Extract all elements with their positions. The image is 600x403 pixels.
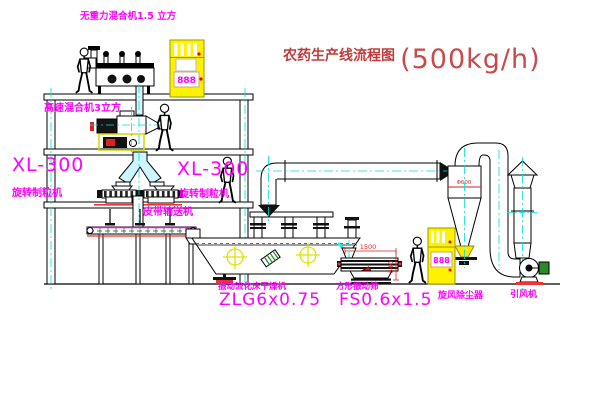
mixer-discharge-pipe (136, 86, 143, 115)
cabinet2-display: 888 (433, 256, 450, 265)
control-cabinet-2: 888 (428, 228, 455, 284)
person-figure (76, 48, 91, 92)
person-figure (156, 104, 172, 150)
label-granulator-left-model: XL-300 (12, 156, 84, 175)
cabinet1-display: 888 (177, 76, 196, 86)
title-capacity: (500kg/h) (400, 44, 541, 75)
label-dryer-model: ZLG6x0.75 (219, 292, 321, 309)
screen-length-dim: 1500 (360, 243, 377, 251)
flow-diagram-canvas: 888 (0, 0, 600, 403)
label-cyclone: 旋风除尘器 (438, 292, 483, 301)
induced-draft-fan (516, 259, 549, 286)
label-gravity-free-mixer: 无重力混合机1.5 立方 (80, 12, 176, 22)
label-granulator-right-model: XL-300 (177, 160, 249, 179)
control-cabinet-1: 888 (170, 40, 204, 97)
label-granulator-left-name: 旋转制粒机 (12, 189, 62, 199)
diagram-title: 农药生产线流程图 (500kg/h) (283, 44, 541, 75)
dryer-ports (250, 217, 360, 238)
high-speed-mixer (90, 111, 162, 150)
title-text: 农药生产线流程图 (283, 48, 395, 64)
person-figure (409, 237, 425, 282)
label-belt-conveyor: 皮带输送机 (143, 208, 193, 218)
label-granulator-right-name: 旋转制粒机 (179, 190, 229, 200)
fluid-bed-dryer (186, 212, 360, 284)
label-screen-model: FS0.6x1.5 (339, 292, 432, 309)
screen-height-dim: 540 (387, 261, 395, 273)
y-chute (116, 152, 164, 186)
granulator-right (139, 186, 183, 203)
label-high-speed-mixer: 高速混合机3立方 (44, 104, 121, 114)
gravity-free-mixer (85, 46, 154, 94)
label-fan: 引风机 (510, 291, 537, 300)
